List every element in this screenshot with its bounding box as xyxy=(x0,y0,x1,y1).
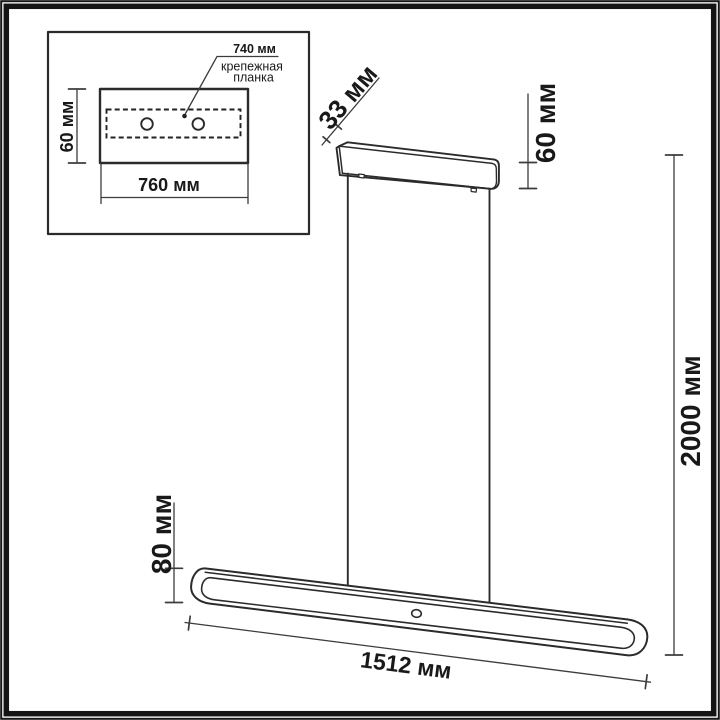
canopy-screw-right xyxy=(471,188,477,192)
bar-height-label: 80 мм xyxy=(146,494,177,574)
callout-text-line2: планка xyxy=(233,71,274,85)
plate-height-label: 60 мм xyxy=(57,101,77,153)
holes-spacing-label: 740 мм xyxy=(233,42,276,56)
bracket-callout: 740 мм крепежная планка xyxy=(186,42,283,114)
mounting-plate-inset: 740 мм крепежная планка 60 мм 760 мм xyxy=(48,32,309,234)
dim-tick xyxy=(188,616,190,630)
canopy xyxy=(337,142,499,192)
canopy-depth-label: 33 мм xyxy=(312,59,383,135)
canopy-height-label: 60 мм xyxy=(530,83,561,163)
dimension-drawing-svg: 740 мм крепежная планка 60 мм 760 мм xyxy=(0,0,720,720)
bar-length-label: 1512 мм xyxy=(359,646,453,683)
canopy-screw-left xyxy=(359,174,365,178)
suspension-height-label: 2000 мм xyxy=(675,355,706,467)
technical-drawing-canvas: 740 мм крепежная планка 60 мм 760 мм xyxy=(0,0,720,720)
inset-plate-height-dimension: 60 мм xyxy=(57,89,86,163)
suspension-height-dimension: 2000 мм xyxy=(666,155,707,655)
mounting-bracket-dashed-outline xyxy=(107,110,241,138)
inset-plate-width-dimension: 760 мм xyxy=(101,164,248,204)
mounting-plate-outline xyxy=(100,89,248,163)
cable-hole-dot xyxy=(182,114,187,119)
bar-height-dimension: 80 мм xyxy=(146,494,183,603)
suspension-wires xyxy=(348,174,490,603)
light-bar xyxy=(191,568,647,655)
dim-tick xyxy=(645,675,647,689)
mounting-hole-right xyxy=(193,118,205,130)
bar-outer-outline xyxy=(191,568,647,655)
canopy-height-dimension: 60 мм xyxy=(520,83,562,189)
plate-width-label: 760 мм xyxy=(138,175,200,195)
mounting-hole-left xyxy=(141,118,153,130)
canopy-depth-dimension: 33 мм xyxy=(312,59,383,145)
